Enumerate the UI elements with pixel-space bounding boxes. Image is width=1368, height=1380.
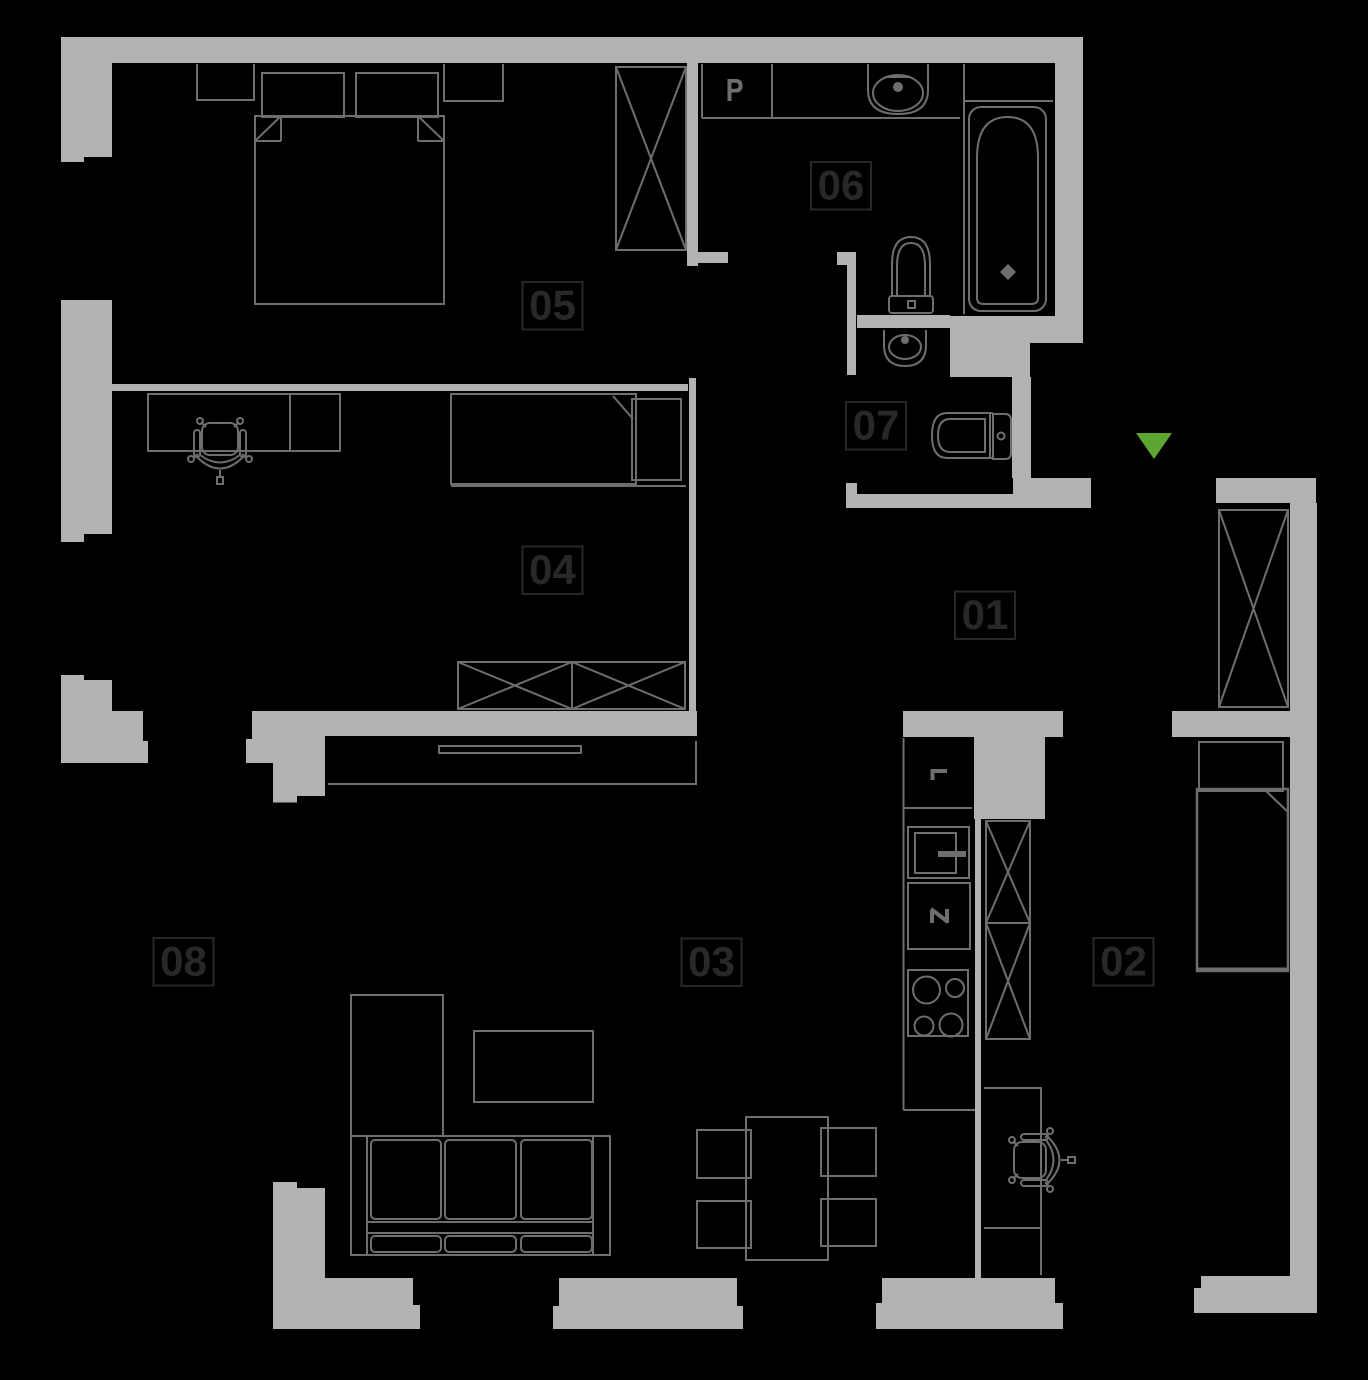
svg-text:01: 01 bbox=[962, 591, 1009, 638]
svg-text:06: 06 bbox=[818, 162, 865, 209]
svg-text:05: 05 bbox=[529, 282, 576, 329]
svg-text:03: 03 bbox=[688, 938, 735, 985]
svg-text:04: 04 bbox=[529, 546, 576, 593]
svg-text:07: 07 bbox=[853, 402, 900, 449]
svg-text:08: 08 bbox=[160, 938, 207, 985]
svg-text:02: 02 bbox=[1100, 938, 1147, 985]
